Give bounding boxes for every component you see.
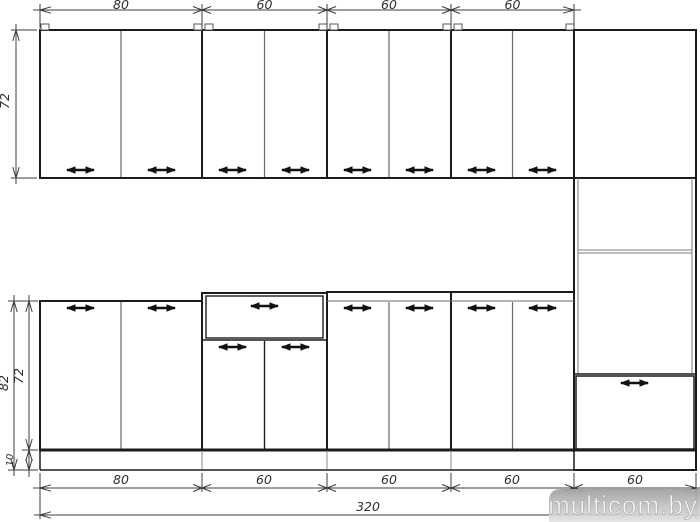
dim-label-top-80: 80 xyxy=(113,0,129,12)
watermark-text: multicom.by xyxy=(548,490,698,520)
tall-cabinet-top-door xyxy=(574,30,696,178)
base-cabinets xyxy=(40,292,574,450)
dimension-wall-height xyxy=(11,24,37,184)
dim-label-base-body: 72 xyxy=(11,368,26,384)
tall-cabinet-bottom-door xyxy=(576,376,694,449)
dim-label-top-60b: 60 xyxy=(381,0,397,12)
wall-cabinets xyxy=(40,30,574,178)
dim-label-plinth: 10 xyxy=(5,454,16,467)
dim-label-top-60a: 60 xyxy=(257,0,273,12)
dim-label-base-overall: 82 xyxy=(0,375,11,391)
tall-cabinet xyxy=(574,30,696,470)
dim-label-total-width: 320 xyxy=(356,499,380,514)
watermark: multicom.by xyxy=(548,489,700,522)
dim-label-wall-height: 72 xyxy=(0,93,12,109)
dim-label-bottom-80: 80 xyxy=(113,472,129,487)
dim-label-bottom-60c: 60 xyxy=(504,472,520,487)
dimension-base-heights xyxy=(8,295,38,477)
dim-label-bottom-60d: 60 xyxy=(627,472,643,487)
dim-label-top-60c: 60 xyxy=(505,0,521,12)
kitchen-elevation-drawing: 80 60 60 60 72 82 72 10 xyxy=(0,0,700,522)
dim-label-bottom-60a: 60 xyxy=(256,472,272,487)
drawing-canvas: 80 60 60 60 72 82 72 10 xyxy=(0,0,700,522)
dim-label-bottom-60b: 60 xyxy=(381,472,397,487)
